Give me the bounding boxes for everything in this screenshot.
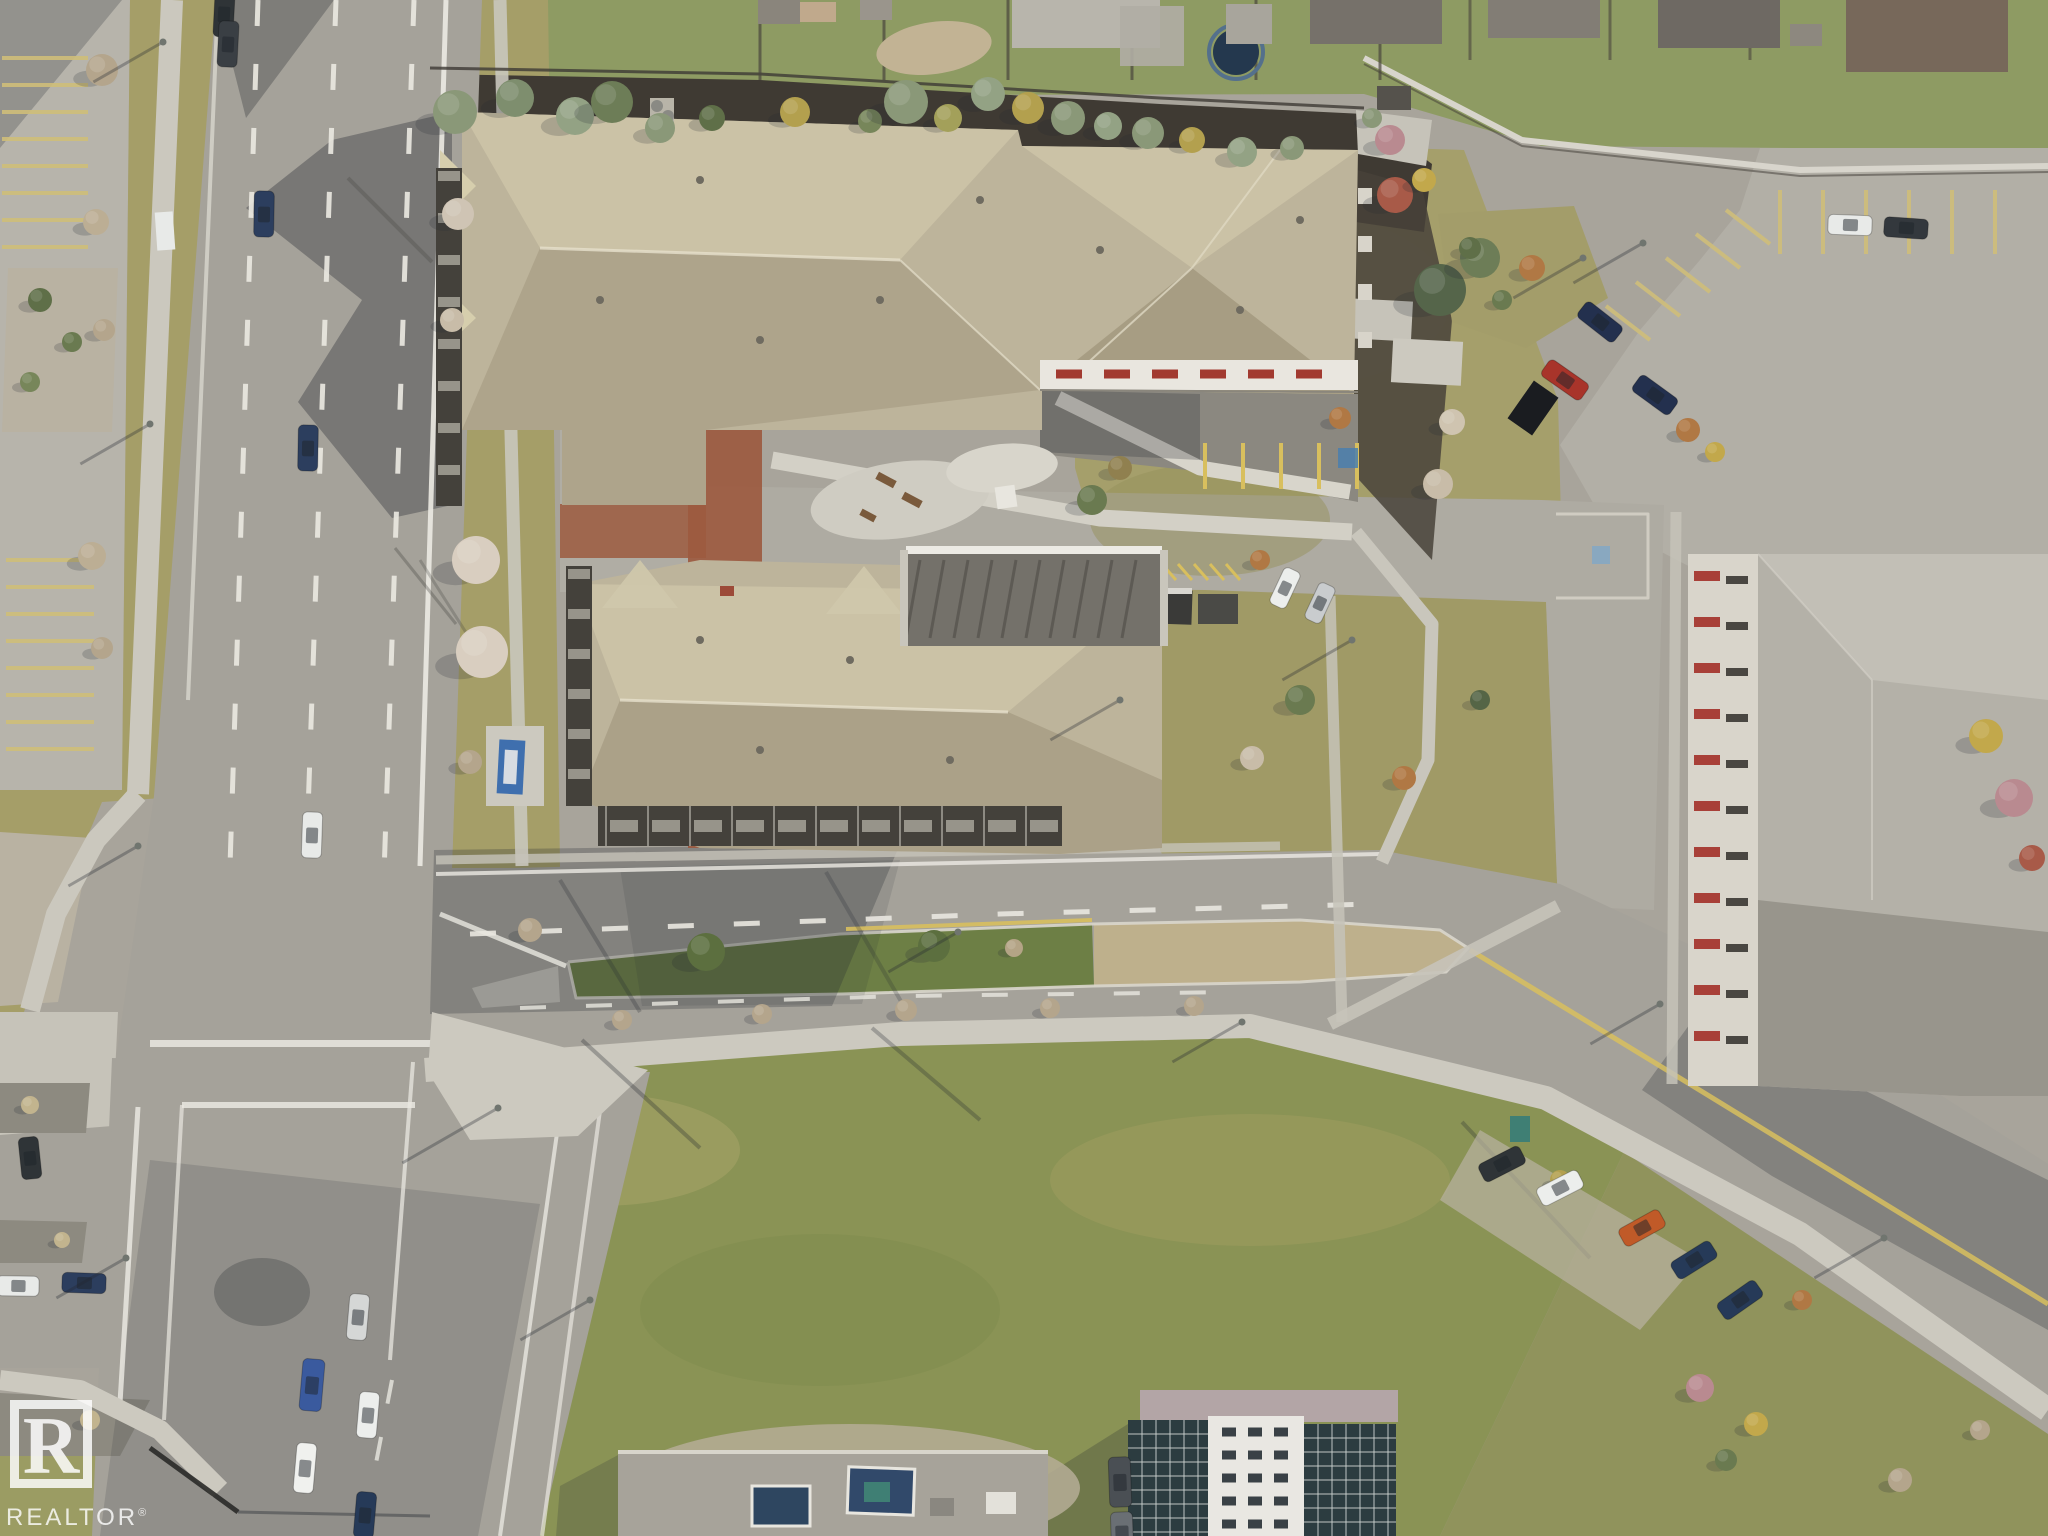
scene-canvas: [0, 0, 2048, 1536]
realtor-logo-letter: R: [23, 1407, 79, 1482]
realtor-watermark: R REALTOR®: [10, 1400, 149, 1532]
registered-symbol: ®: [138, 1507, 149, 1519]
realtor-wordmark: REALTOR®: [6, 1504, 149, 1532]
realtor-brand-text: REALTOR: [6, 1504, 138, 1531]
realtor-logo-icon: R: [10, 1400, 92, 1488]
aerial-photo: R REALTOR®: [0, 0, 2048, 1536]
